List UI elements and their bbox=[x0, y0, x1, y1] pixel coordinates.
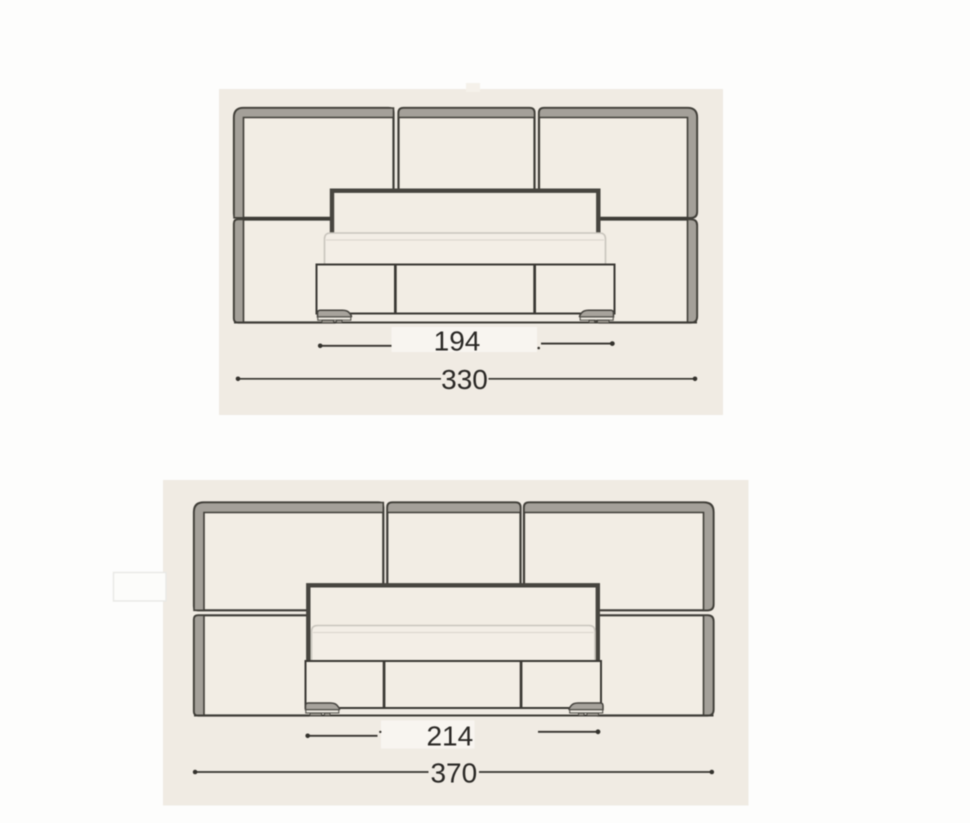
svg-text:214: 214 bbox=[426, 721, 473, 752]
svg-text:370: 370 bbox=[430, 757, 477, 788]
svg-text:330: 330 bbox=[441, 364, 488, 395]
svg-text:194: 194 bbox=[434, 326, 481, 357]
